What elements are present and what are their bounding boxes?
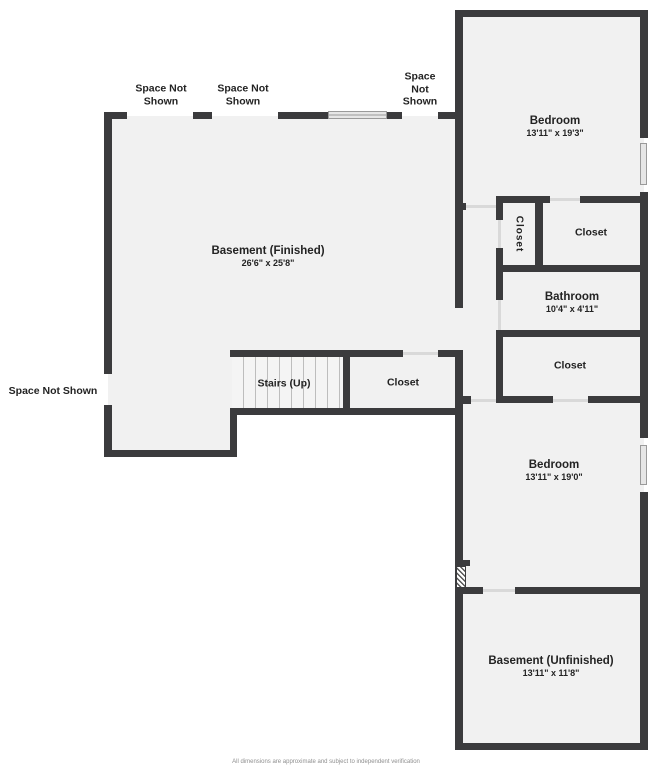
wall (496, 396, 553, 403)
room-floor-bedroom-lower (459, 400, 644, 591)
door-opening (498, 300, 501, 330)
disclaimer-text: All dimensions are approximate and subje… (232, 759, 420, 765)
floor-plan: Basement (Finished) 26'6" x 25'8" Bedroo… (0, 0, 654, 768)
wall (104, 112, 112, 374)
room-dimensions: 10'4" x 4'11" (545, 304, 599, 315)
room-dimensions: 13'11" x 19'3" (526, 128, 583, 139)
door-opening (483, 589, 515, 592)
room-dimensions: 13'11" x 19'0" (525, 472, 582, 483)
room-label-closet-stairs: Closet (387, 377, 419, 390)
wall (640, 192, 648, 438)
wall (455, 743, 648, 750)
room-name: Closet (387, 377, 419, 390)
door-opening (466, 205, 496, 208)
window-icon (640, 445, 647, 485)
wall (640, 10, 648, 138)
door-opening (553, 399, 588, 402)
room-label-basement-finished: Basement (Finished) 26'6" x 25'8" (211, 245, 324, 269)
door-opening (471, 399, 496, 402)
door-opening (403, 352, 438, 355)
wall (496, 196, 503, 220)
wall (455, 350, 463, 750)
wall (278, 112, 328, 119)
room-name: Basement (Finished) (211, 245, 324, 258)
room-label-stairs: Stairs (Up) (257, 378, 310, 391)
room-label-bathroom: Bathroom 10'4" x 4'11" (545, 291, 599, 315)
room-label-bedroom-upper: Bedroom 13'11" x 19'3" (526, 115, 583, 139)
annotation-space-not-shown: Space Not Shown (9, 385, 98, 398)
window-icon (640, 143, 647, 185)
room-dimensions: 26'6" x 25'8" (211, 258, 324, 269)
room-label-closet-upper: Closet (575, 227, 607, 240)
room-label-basement-unfinished: Basement (Unfinished) 13'11" x 11'8" (488, 655, 613, 679)
room-label-bedroom-lower: Bedroom 13'11" x 19'0" (525, 459, 582, 483)
wall (496, 330, 503, 403)
wall (515, 587, 648, 594)
chimney-hatch-icon (456, 566, 466, 588)
room-name: Bedroom (525, 459, 582, 472)
wall (230, 350, 403, 357)
wall (230, 408, 237, 457)
door-opening (550, 198, 580, 201)
room-name: Closet (575, 227, 607, 240)
annotation-space-not-shown: Space Not Shown (399, 70, 441, 108)
room-dimensions: 13'11" x 11'8" (488, 668, 613, 679)
room-label-closet-small: Closet (514, 216, 525, 253)
wall (588, 396, 648, 403)
wall (343, 352, 350, 415)
wall (496, 265, 648, 272)
room-floor-basement-finished-extension (108, 116, 234, 454)
wall (455, 10, 463, 308)
room-name: Stairs (Up) (257, 378, 310, 391)
window-icon (328, 111, 387, 119)
room-name: Bathroom (545, 291, 599, 304)
wall (496, 248, 503, 300)
wall (104, 450, 237, 457)
wall (104, 405, 112, 457)
wall (640, 492, 648, 750)
wall (535, 196, 543, 272)
door-opening (498, 220, 501, 248)
wall (496, 330, 648, 337)
hallway-floor (459, 200, 500, 400)
room-floor-bedroom-upper (459, 14, 644, 200)
room-name: Basement (Unfinished) (488, 655, 613, 668)
wall (580, 196, 648, 203)
room-label-closet-mid: Closet (554, 360, 586, 373)
wall (455, 10, 648, 17)
annotation-space-not-shown: Space Not Shown (211, 83, 275, 108)
room-name: Closet (554, 360, 586, 373)
room-name: Bedroom (526, 115, 583, 128)
wall (193, 112, 212, 119)
wall (387, 112, 402, 119)
annotation-space-not-shown: Space Not Shown (129, 83, 193, 108)
